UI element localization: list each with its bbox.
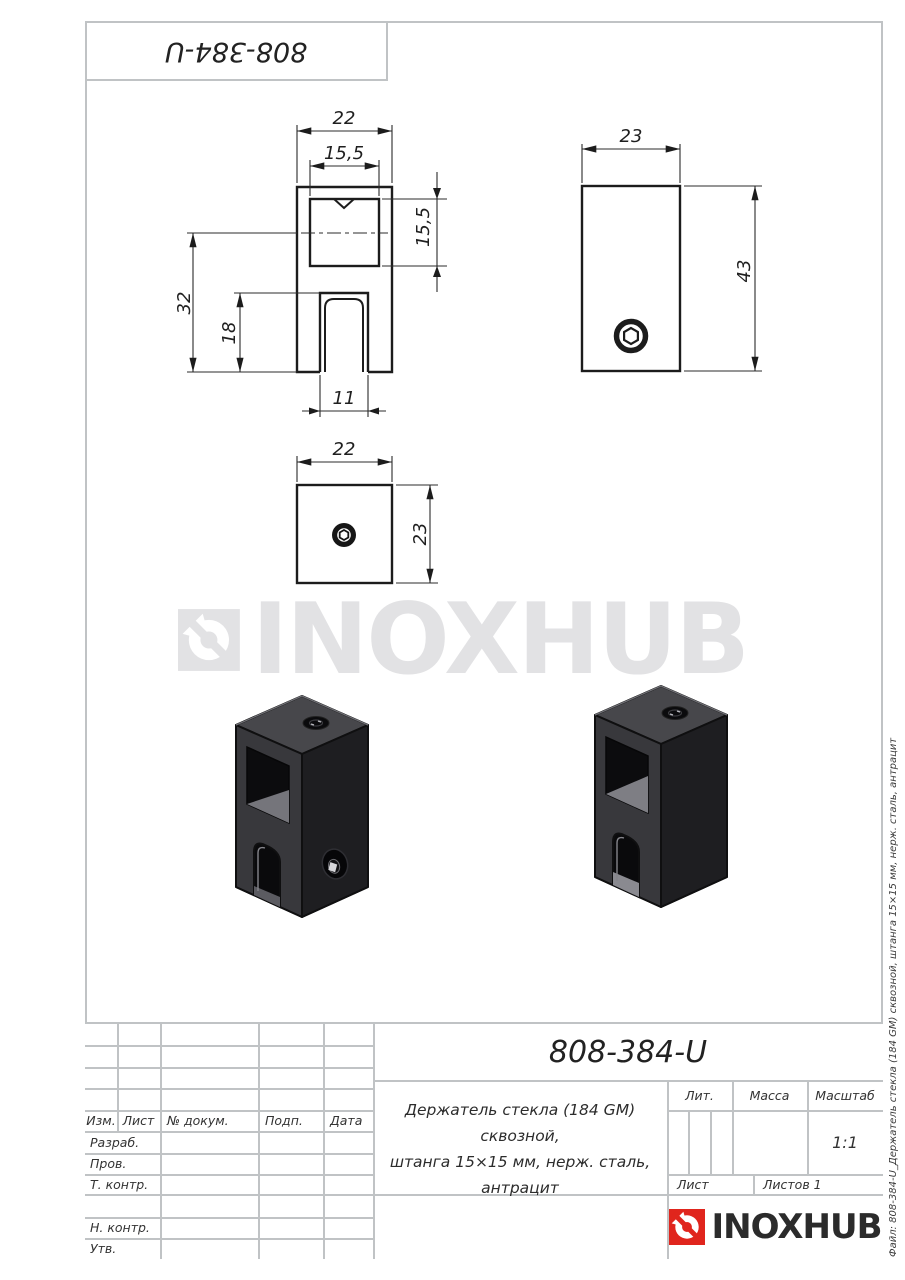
col-header-izm: Изм. [85,1110,117,1131]
dim-front-hole-side: 15,5 [413,207,434,247]
dim-front-slot-depth: 18 [219,322,240,345]
sheets-count-label: Листов 1 [753,1174,893,1194]
file-note-vertical: Файл: 808-384-U_Держатель стекла (184 GM… [888,738,899,1257]
dim-front-slot-width: 11 [333,388,356,409]
row-utv: Утв. [85,1238,165,1259]
col-header-list: Лист [117,1110,160,1131]
part-code: 808-384-U [373,1024,883,1080]
row-nkontr: Н. контр. [85,1217,165,1238]
dim-side-height: 43 [734,260,755,283]
header-mass: Масса [732,1080,807,1110]
side-view-dimension-lines [582,144,762,371]
part-description-line2: штанга 15×15 мм, нерж. сталь, антрацит [373,1149,667,1201]
row-tkontr: Т. контр. [85,1174,165,1194]
drawing-sheet: { "sheet": { "top_code": "808-384-U", "w… [0,0,905,1280]
iso-left-glass-slot [254,844,280,907]
brand-logo-cell: INOXHUB [667,1194,883,1259]
col-header-doc: № докум. [160,1110,265,1131]
side-view-outline [582,186,680,371]
header-scale: Масштаб [807,1080,883,1110]
col-header-date: Дата [323,1110,380,1131]
sheet-label: Лист [667,1174,763,1194]
header-lit: Лит. [667,1080,732,1110]
iso-render-left [226,690,378,927]
top-view-drawing: 22 23 [270,440,450,600]
dim-top-width: 22 [333,440,356,460]
dim-front-width: 22 [333,108,356,129]
row-blank [85,1194,165,1217]
iso-render-right [585,680,737,917]
dim-front-hole: 15,5 [324,143,364,164]
dim-top-depth: 23 [410,523,431,546]
top-view-dimension-lines [297,456,438,583]
brand-name: INOXHUB [712,1207,882,1247]
dim-side-width: 23 [620,126,643,147]
front-view-outline [297,187,392,372]
inoxhub-watermark-logo-icon [178,594,240,686]
watermark-text: INOXHUB [252,594,748,686]
title-block: Изм. Лист № докум. Подп. Дата Разраб. Пр… [85,1022,883,1257]
watermark: INOXHUB [178,590,748,690]
row-razrab: Разраб. [85,1131,165,1153]
iso-right-top-hole [662,707,688,720]
col-header-sign: Подп. [258,1110,330,1131]
iso-left-top-hole [303,717,329,730]
row-prov: Пров. [85,1153,165,1174]
part-description: Держатель стекла (184 GM) сквозной, штан… [373,1080,667,1194]
top-code-box: 808-384-U [85,21,388,81]
side-view-drawing: 23 43 [555,105,785,395]
inoxhub-logo-icon [669,1209,705,1245]
top-view-outline [297,485,392,583]
dim-front-to-axis: 32 [174,292,195,315]
iso-right-glass-slot [613,834,639,897]
top-code-text: 808-384-U [165,36,307,67]
part-description-line1: Держатель стекла (184 GM) сквозной, [373,1097,667,1149]
front-view-drawing: 22 15,5 15,5 32 18 11 [170,105,460,425]
scale-value: 1:1 [807,1110,883,1174]
